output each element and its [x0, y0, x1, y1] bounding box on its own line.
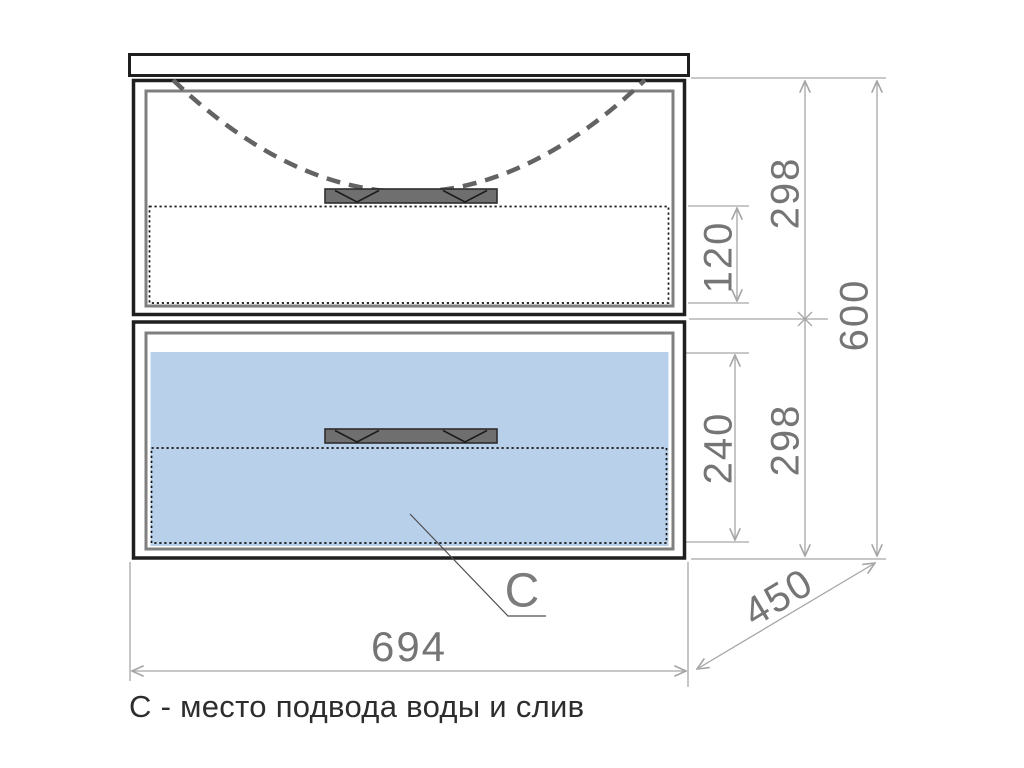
dim-label-bottom-drawer-inner-240: 240 [697, 412, 742, 485]
cabinet-front-view-drawing [0, 0, 1024, 768]
dim-label-bottom-drawer-298: 298 [764, 404, 809, 477]
dim-label-width-694: 694 [371, 623, 447, 671]
countertop [130, 55, 689, 76]
dim-label-top-drawer-298: 298 [764, 157, 809, 230]
connection-point-label: С [505, 564, 540, 619]
top-drawer-handle [325, 189, 497, 203]
bottom-drawer-highlight-area [151, 352, 669, 546]
dim-label-height-600: 600 [833, 279, 878, 352]
drawing-caption: С - место подвода воды и слив [129, 689, 584, 725]
dim-label-top-drawer-inner-120: 120 [697, 221, 742, 294]
technical-drawing-page: 120 298 600 240 298 694 450 С С - место … [0, 0, 1024, 768]
bottom-drawer-handle [325, 429, 497, 443]
